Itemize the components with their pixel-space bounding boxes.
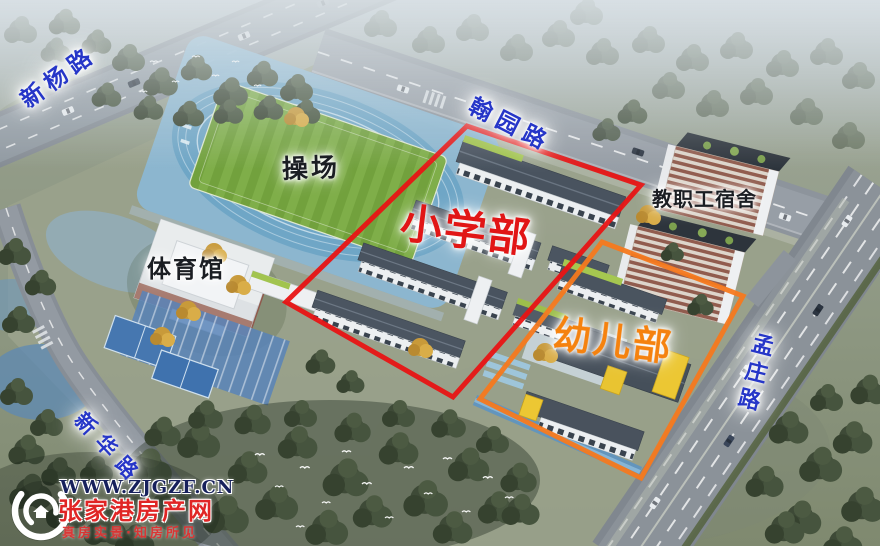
campus-aerial-rendering: 新杨路 翰园路 孟庄路 新华路 操场 体育馆 教职工宿舍 小学部 幼儿部 WWW… (0, 0, 880, 546)
watermark-site-name: 张家港房产网 (58, 499, 214, 523)
watermark-slogan: 真房实景·知房所见 (62, 527, 198, 540)
watermark-url: WWW.ZJGZF.CN (60, 479, 234, 497)
haze-overlay (0, 0, 880, 170)
label-playground: 操场 (282, 155, 341, 183)
label-gymnasium: 体育馆 (147, 257, 225, 281)
label-staff-dormitory: 教职工宿舍 (652, 189, 757, 209)
